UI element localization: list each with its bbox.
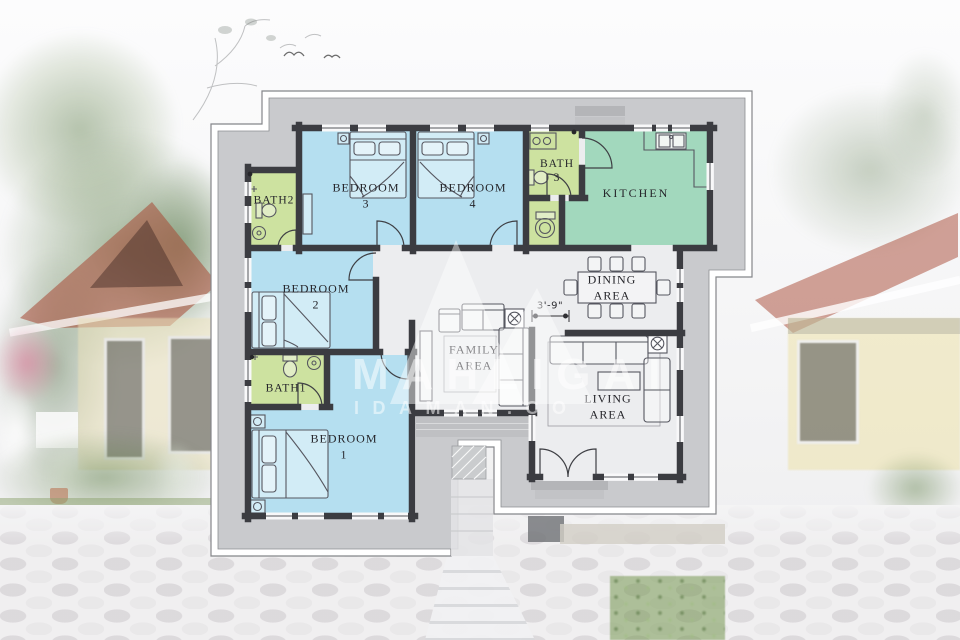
ceiling-fan-living bbox=[648, 334, 667, 353]
wardrobe-bedroom-3 bbox=[303, 194, 312, 234]
ceiling-fan-family bbox=[505, 309, 524, 328]
floor-plan bbox=[0, 0, 960, 640]
entry-gate-screen bbox=[451, 446, 493, 556]
front-entry-steps bbox=[531, 481, 608, 499]
bed-bedroom-1 bbox=[250, 415, 328, 513]
rear-porch-steps bbox=[416, 417, 530, 437]
back-step bbox=[575, 106, 625, 125]
bed-bedroom-2 bbox=[252, 292, 330, 348]
floor-plan-scene: BEDROOM 3 BEDROOM 4 BEDROOM 2 BEDROOM 1 … bbox=[0, 0, 960, 640]
room-bath-3 bbox=[529, 131, 579, 195]
